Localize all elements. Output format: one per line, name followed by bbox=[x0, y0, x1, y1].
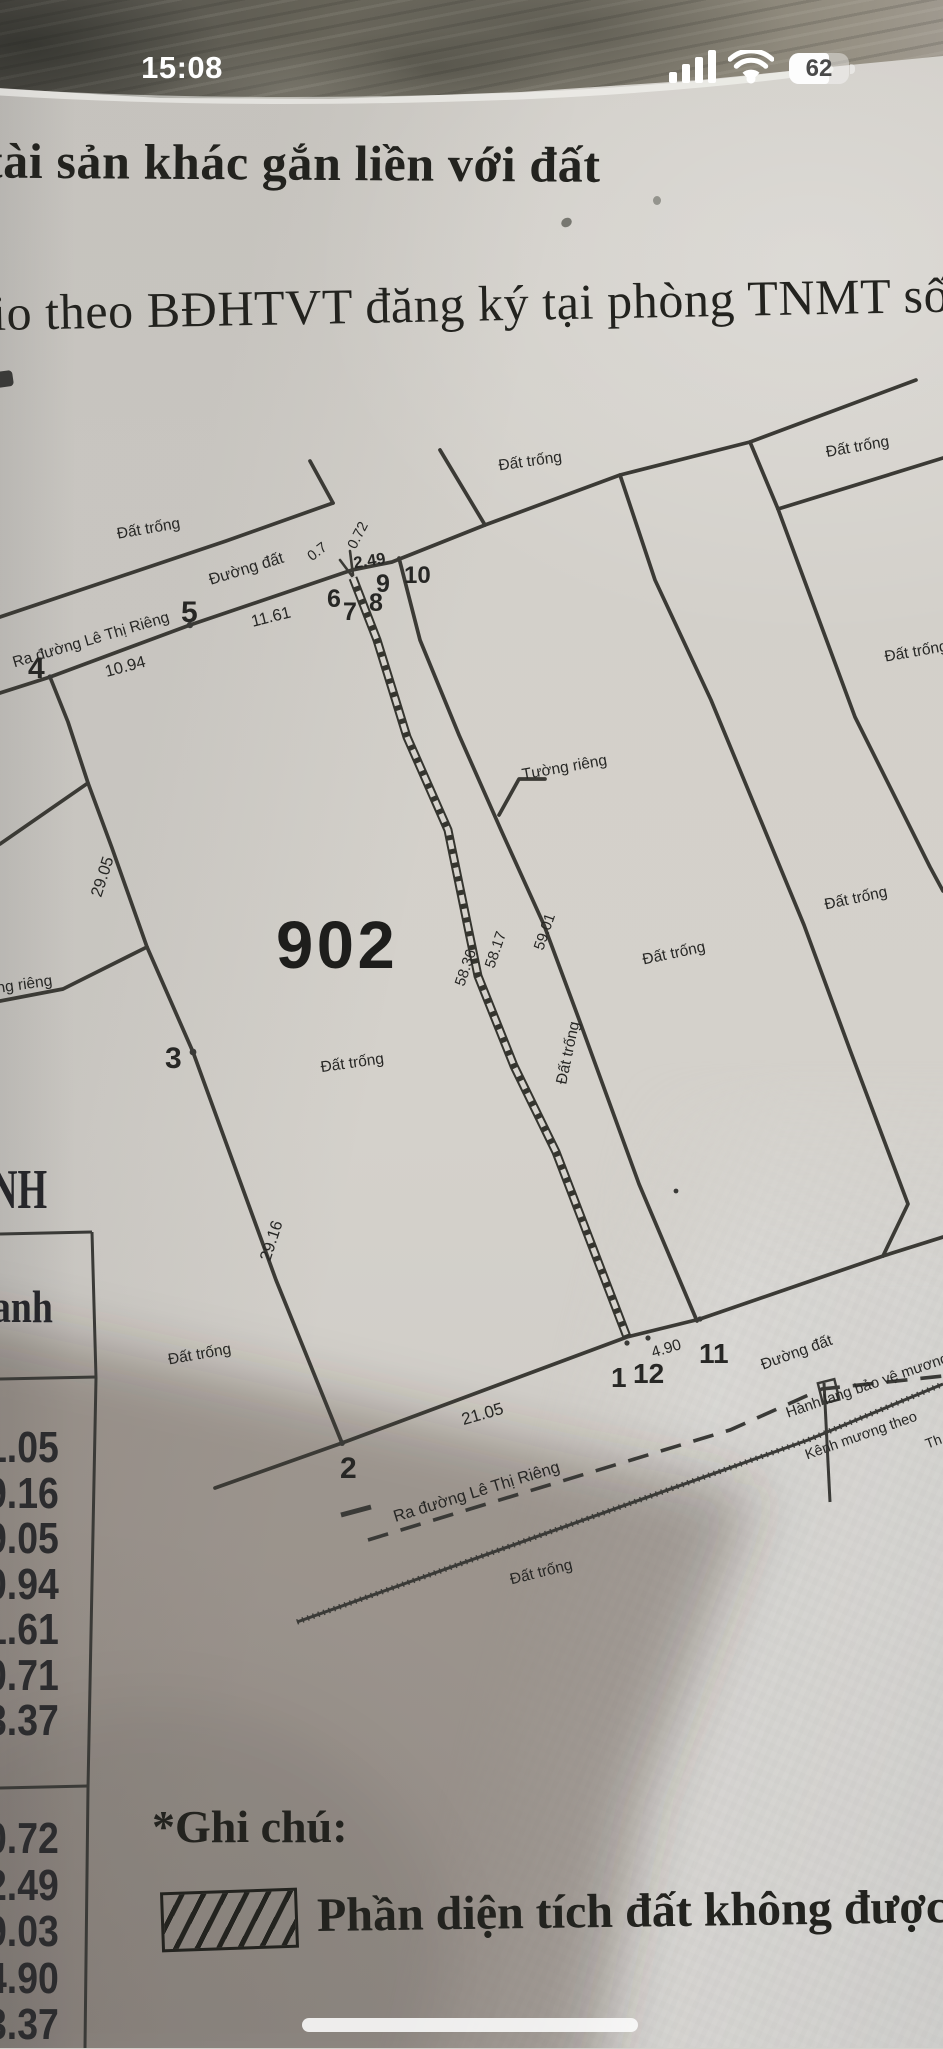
svg-text:Đất trống: Đất trống bbox=[553, 1020, 583, 1086]
svg-text:1: 1 bbox=[611, 1362, 627, 1393]
svg-text:10: 10 bbox=[404, 562, 431, 589]
svg-text:59.01: 59.01 bbox=[531, 911, 559, 952]
svg-text:6: 6 bbox=[327, 585, 341, 613]
svg-text:29.16: 29.16 bbox=[257, 1218, 287, 1263]
svg-text:Đất trống: Đất trống bbox=[641, 939, 707, 969]
svg-text:29.05: 29.05 bbox=[88, 854, 118, 899]
svg-text:4.90: 4.90 bbox=[649, 1336, 683, 1361]
svg-text:Đất trống: Đất trống bbox=[823, 884, 889, 914]
svg-text:Ra đường Lê Thị Riêng: Ra đường Lê Thị Riêng bbox=[391, 1458, 562, 1526]
svg-text:11.61: 11.61 bbox=[249, 604, 292, 631]
svg-text:0.7: 0.7 bbox=[305, 540, 331, 565]
svg-text:21.05: 21.05 bbox=[459, 1399, 505, 1429]
svg-text:Đất trống: Đất trống bbox=[883, 638, 943, 666]
svg-text:Tường riêng: Tường riêng bbox=[521, 752, 609, 784]
svg-text:Đất trống: Đất trống bbox=[116, 515, 182, 543]
svg-text:902: 902 bbox=[276, 908, 398, 983]
svg-text:10.94: 10.94 bbox=[103, 653, 148, 681]
svg-text:Đất trống: Đất trống bbox=[320, 1050, 386, 1076]
svg-text:9: 9 bbox=[376, 570, 390, 598]
svg-text:Đất trống: Đất trống bbox=[167, 1341, 233, 1369]
svg-text:12: 12 bbox=[633, 1358, 664, 1389]
svg-text:7: 7 bbox=[343, 598, 357, 626]
svg-text:Th: Th bbox=[923, 1431, 943, 1452]
svg-text:11: 11 bbox=[699, 1338, 729, 1369]
svg-text:Đất trống: Đất trống bbox=[508, 1556, 574, 1588]
svg-text:58.17: 58.17 bbox=[482, 929, 510, 970]
svg-text:Đất trống: Đất trống bbox=[497, 449, 563, 475]
svg-text:0.72: 0.72 bbox=[345, 519, 372, 551]
svg-text:Đường đất: Đường đất bbox=[759, 1332, 836, 1374]
svg-text:Hành lang bảo vệ mương: Hành lang bảo vệ mương bbox=[784, 1350, 943, 1422]
svg-text:3: 3 bbox=[165, 1042, 182, 1075]
svg-text:Đường đất: Đường đất bbox=[207, 550, 286, 589]
svg-text:Đất trống: Đất trống bbox=[825, 433, 891, 461]
svg-text:2: 2 bbox=[340, 1452, 357, 1485]
